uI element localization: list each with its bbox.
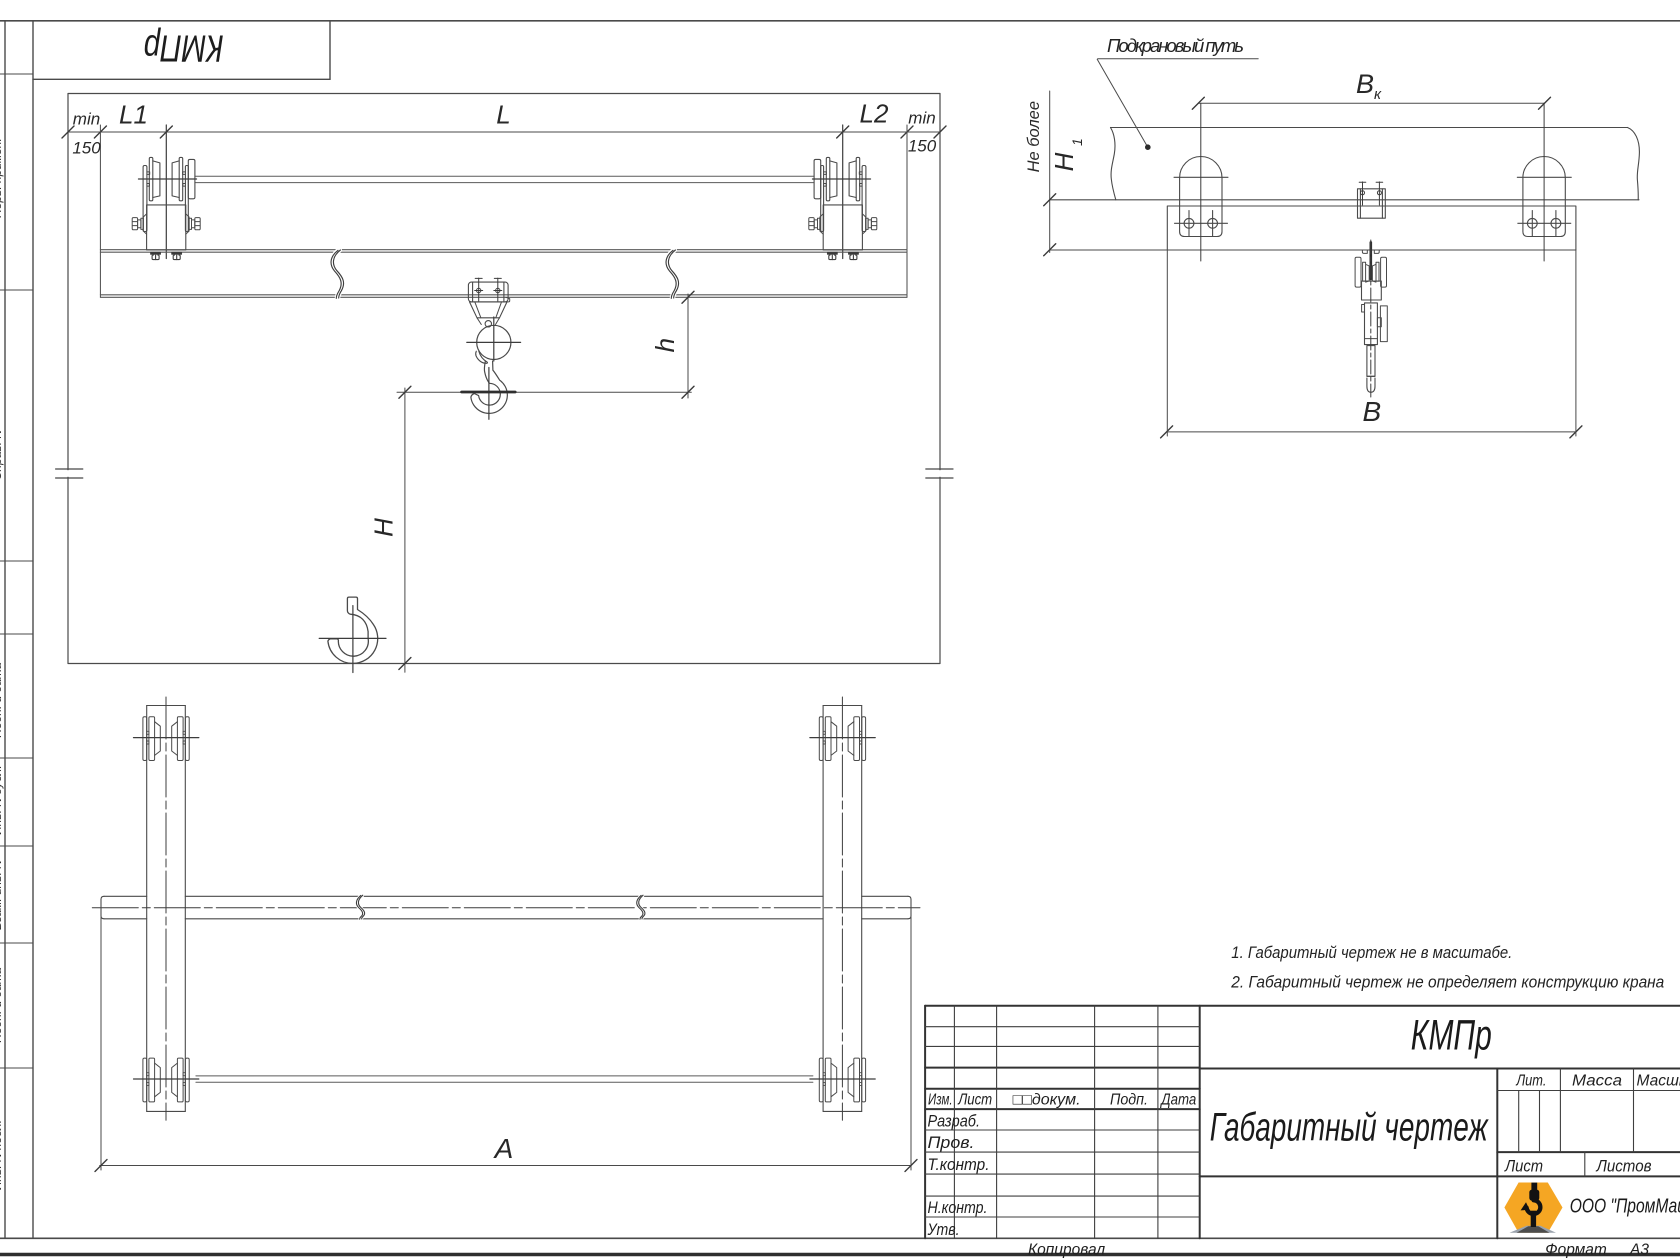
svg-text:Утв.: Утв. [927,1221,960,1239]
svg-text:Инв. N дубл.: Инв. N дубл. [0,765,4,834]
svg-text:B: B [1356,69,1374,99]
svg-text:КМПр: КМПр [144,26,224,68]
svg-text:Подп.: Подп. [1110,1092,1148,1109]
svg-text:Перв. примен.: Перв. примен. [0,138,4,218]
svg-text:150: 150 [908,137,937,156]
svg-text:2. Габаритный чертеж не опреде: 2. Габаритный чертеж не определяет конст… [1230,973,1664,992]
svg-text:Не более: Не более [1025,101,1043,172]
svg-text:Изм.: Изм. [928,1092,953,1109]
svg-text:L1: L1 [119,100,148,130]
svg-text:Взам. инв. N: Взам. инв. N [0,860,4,930]
svg-text:А3: А3 [1629,1242,1649,1259]
svg-text:Габаритный чертеж: Габаритный чертеж [1210,1106,1489,1150]
svg-text:Масса: Масса [1572,1073,1622,1090]
svg-text:к: к [1374,86,1382,103]
svg-text:Справ. N: Справ. N [0,430,4,481]
svg-text:Формат: Формат [1545,1242,1607,1259]
svg-text:h: h [650,338,680,352]
svg-text:Масштаб: Масштаб [1637,1073,1680,1090]
svg-text:Пров.: Пров. [928,1134,975,1152]
svg-text:Лист: Лист [1504,1158,1543,1176]
svg-text:Лит.: Лит. [1516,1073,1547,1090]
svg-text:Подп. и дата: Подп. и дата [0,967,4,1042]
svg-text:Подп. и дата: Подп. и дата [0,662,4,737]
svg-text:□□докум.: □□докум. [1013,1092,1081,1109]
svg-text:L: L [496,100,510,130]
svg-text:Дата: Дата [1160,1092,1197,1109]
svg-text:А: А [493,1133,514,1164]
svg-text:L2: L2 [860,99,889,129]
svg-text:Подкрановый путь: Подкрановый путь [1107,35,1244,56]
svg-text:Листов: Листов [1596,1158,1652,1176]
svg-text:Н.контр.: Н.контр. [928,1199,988,1217]
svg-text:ООО "ПромМаш": ООО "ПромМаш" [1570,1195,1680,1218]
svg-text:Копировал: Копировал [1028,1242,1105,1259]
svg-text:min: min [908,109,935,128]
svg-text:Инв. N подл.: Инв. N подл. [0,1120,4,1190]
svg-text:min: min [73,110,100,129]
svg-text:H: H [369,518,399,537]
svg-text:1: 1 [1069,138,1085,146]
svg-text:1. Габаритный чертеж не в масш: 1. Габаритный чертеж не в масштабе. [1231,943,1512,962]
svg-text:Разраб.: Разраб. [928,1113,981,1131]
svg-text:B: B [1363,396,1382,427]
svg-text:Лист: Лист [957,1092,992,1109]
svg-text:Т.контр.: Т.контр. [928,1156,990,1174]
svg-text:150: 150 [72,139,101,158]
svg-text:КМПр: КМПр [1411,1012,1492,1060]
svg-text:H: H [1049,152,1079,171]
